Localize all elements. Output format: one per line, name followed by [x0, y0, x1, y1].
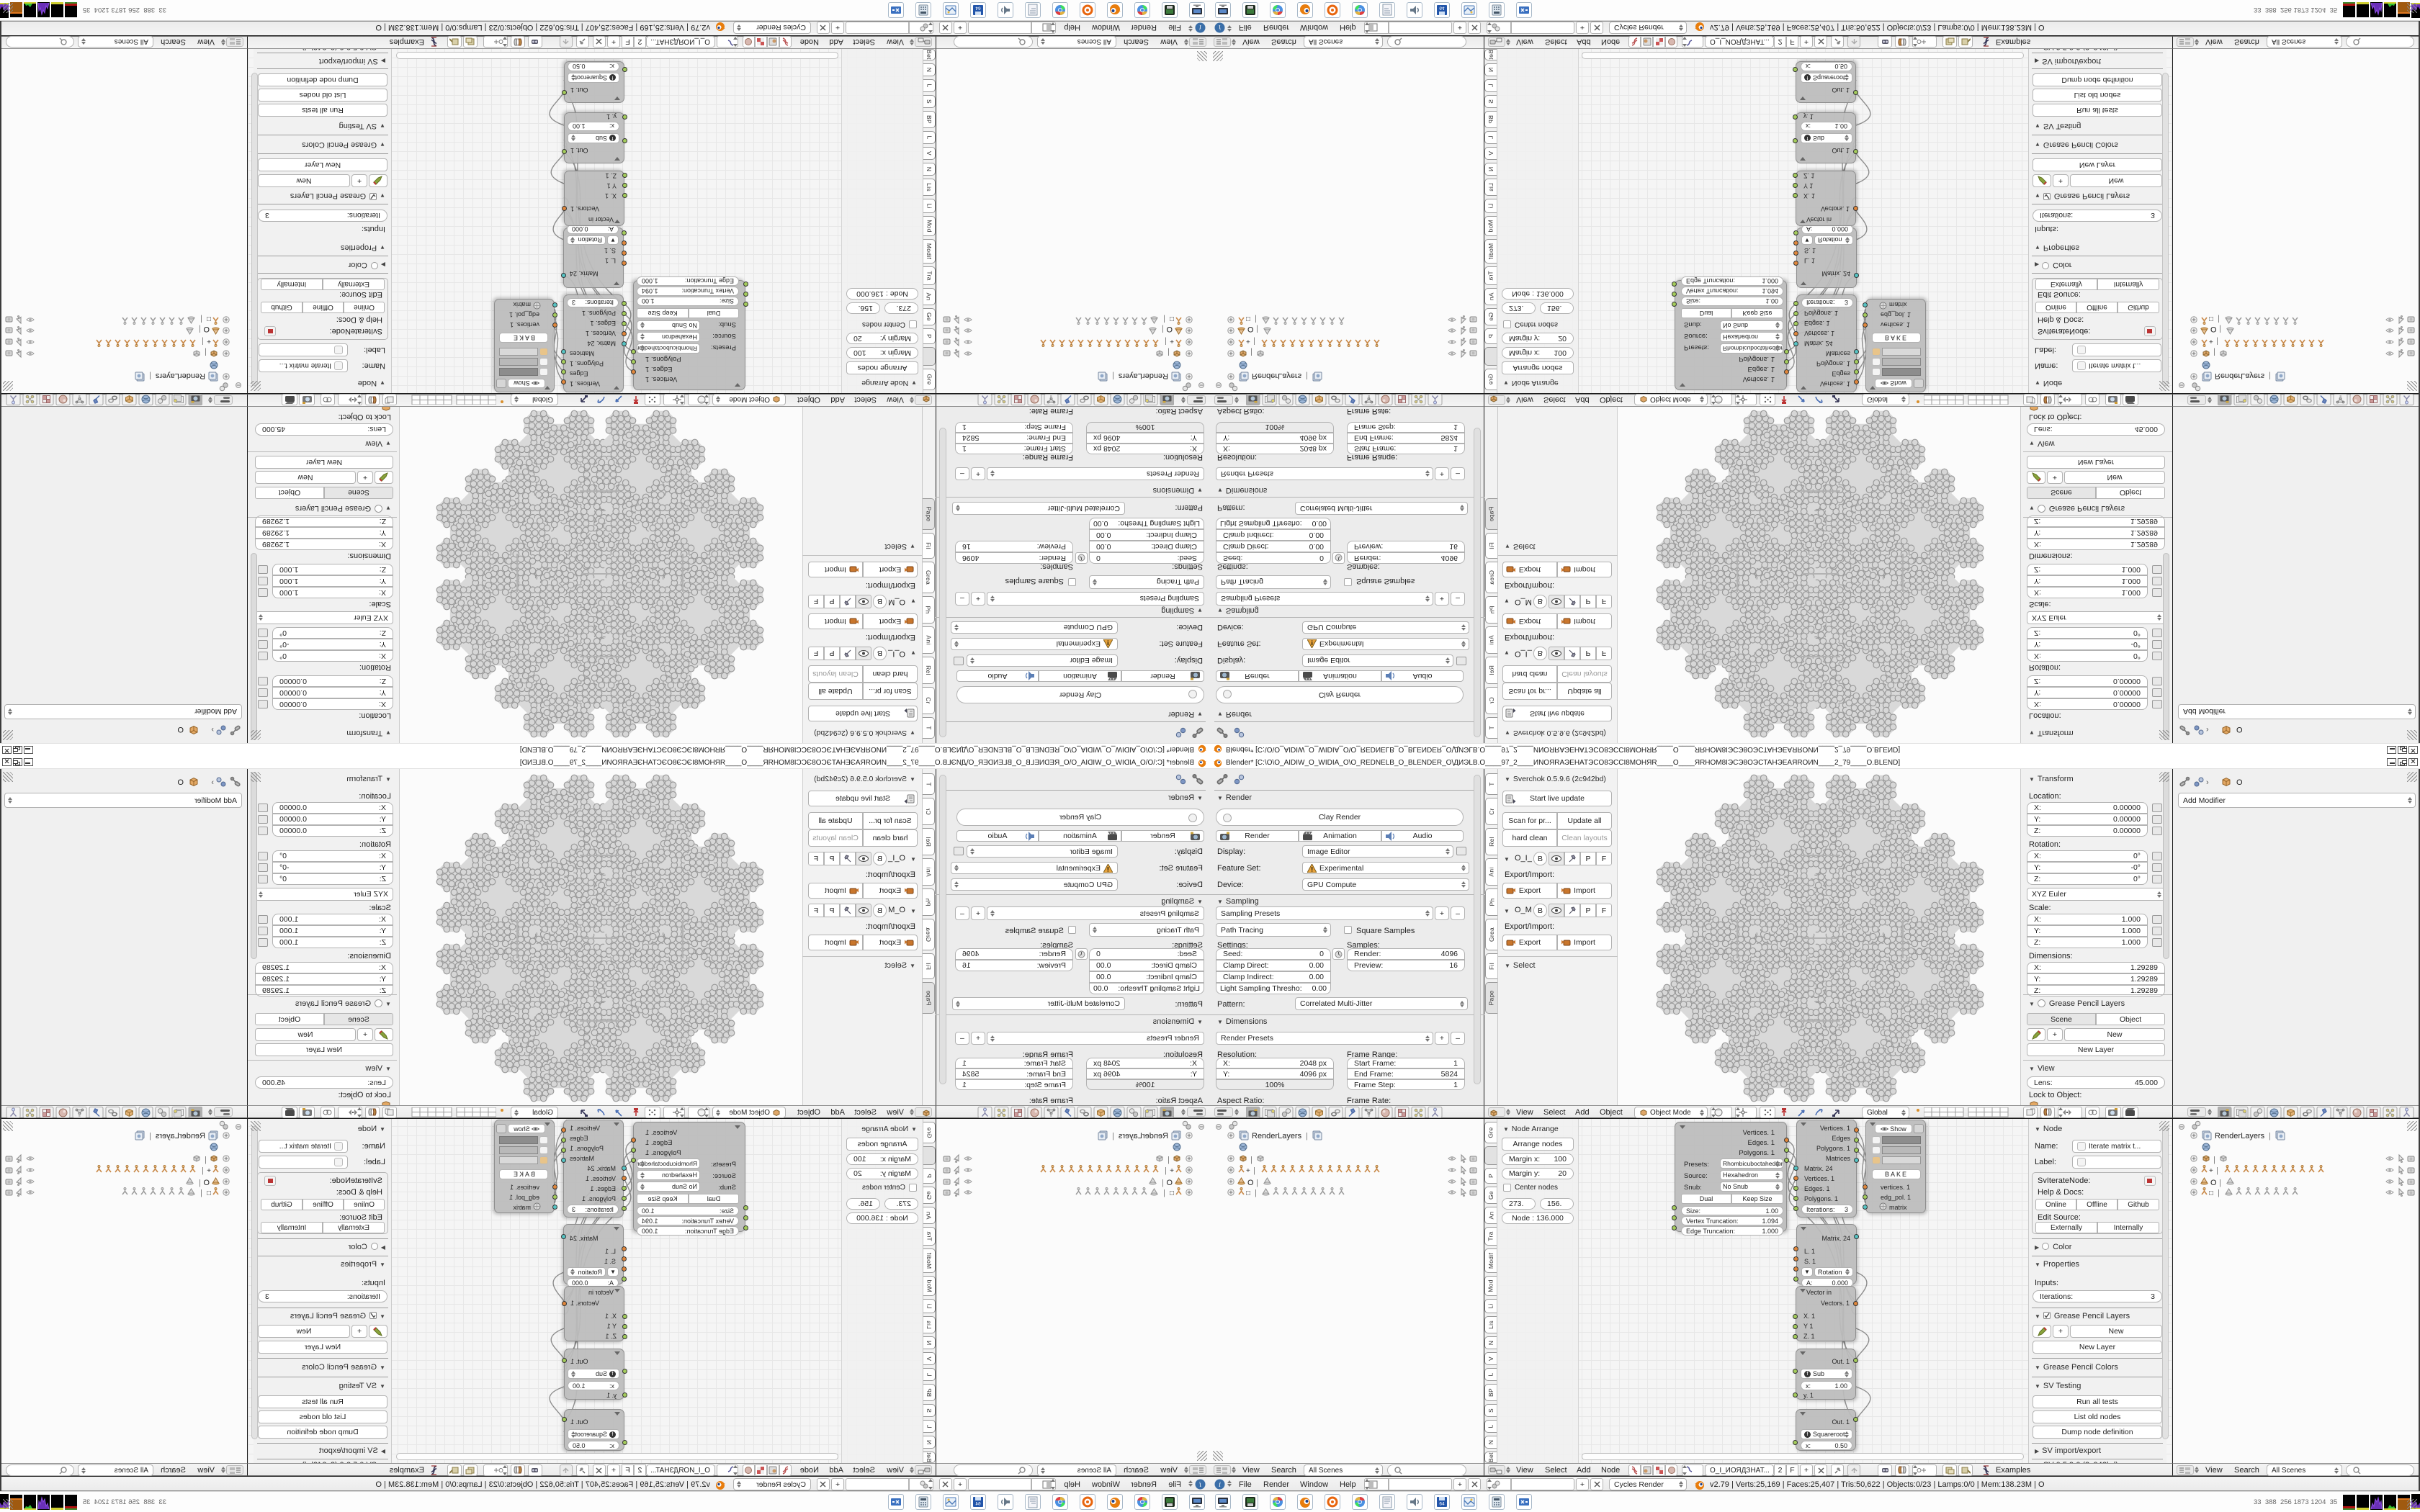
svg-text:|: |: [2213, 348, 2215, 356]
svg-text:RenderLayers: RenderLayers: [2215, 372, 2265, 380]
svg-text:RenderLayers: RenderLayers: [1252, 1132, 1302, 1140]
svg-text:|: |: [1168, 348, 1170, 356]
svg-text:|: |: [1306, 1132, 1308, 1140]
svg-text:O: O: [203, 1179, 210, 1187]
svg-text:|: |: [149, 1132, 151, 1140]
svg-text:O: O: [1166, 1179, 1173, 1187]
svg-text:|: |: [2216, 1166, 2218, 1175]
svg-text:□: □: [207, 1189, 211, 1197]
svg-text:|: |: [1162, 325, 1164, 333]
svg-text:RenderLayers: RenderLayers: [155, 372, 205, 380]
svg-text:|: |: [1163, 315, 1165, 323]
svg-text:+: +: [2209, 337, 2213, 345]
svg-text:O: O: [2210, 1179, 2217, 1187]
svg-text:i: i: [1199, 1481, 1201, 1489]
svg-text:|: |: [2219, 325, 2221, 333]
svg-text:|: |: [205, 1156, 207, 1164]
svg-text:|: |: [1250, 348, 1252, 356]
svg-text:|: |: [2213, 1156, 2215, 1164]
svg-text:i: i: [1219, 1481, 1221, 1489]
svg-text:|: |: [1253, 1166, 1255, 1175]
svg-text:|: |: [1165, 1166, 1167, 1175]
svg-text:64: 64: [1439, 1502, 1445, 1507]
svg-text:|: |: [1163, 1189, 1165, 1197]
svg-text:64: 64: [1439, 6, 1445, 11]
svg-text:|: |: [1256, 1179, 1258, 1187]
svg-text:□: □: [1246, 315, 1250, 323]
svg-text:|: |: [2219, 1179, 2221, 1187]
svg-text:i: i: [1219, 23, 1221, 31]
svg-text:|: |: [199, 1179, 201, 1187]
svg-text:|: |: [1256, 325, 1258, 333]
svg-text:|: |: [205, 348, 207, 356]
svg-text:|: |: [1255, 1189, 1257, 1197]
svg-text:|: |: [1162, 1179, 1164, 1187]
svg-text:+: +: [207, 337, 211, 345]
svg-text:RenderLayers: RenderLayers: [155, 1132, 205, 1140]
svg-text:|: |: [2216, 337, 2218, 346]
svg-text:|: |: [1168, 1156, 1170, 1164]
svg-text:i: i: [1199, 23, 1201, 31]
svg-text:+: +: [1246, 337, 1250, 345]
svg-text:|: |: [1253, 337, 1255, 346]
svg-text:|: |: [1250, 1156, 1252, 1164]
svg-text:RenderLayers: RenderLayers: [1252, 372, 1302, 380]
svg-text:O: O: [1247, 1179, 1254, 1187]
svg-text:|: |: [2269, 372, 2271, 380]
svg-text:|: |: [1165, 337, 1167, 346]
svg-text:64: 64: [975, 1502, 981, 1507]
svg-text:|: |: [149, 372, 151, 380]
svg-text:O: O: [2210, 325, 2217, 333]
svg-text:+: +: [207, 1167, 211, 1175]
svg-text:+: +: [2209, 1167, 2213, 1175]
svg-text:|: |: [1112, 372, 1114, 380]
svg-text:|: |: [202, 1166, 204, 1175]
svg-text:O: O: [203, 325, 210, 333]
svg-text:□: □: [2209, 1189, 2213, 1197]
svg-text:|: |: [1112, 1132, 1114, 1140]
svg-text:□: □: [1170, 1189, 1174, 1197]
svg-text:|: |: [1255, 315, 1257, 323]
svg-text:|: |: [200, 315, 202, 323]
svg-text:+: +: [1246, 1167, 1250, 1175]
svg-text:□: □: [207, 315, 211, 323]
svg-text:RenderLayers: RenderLayers: [1118, 1132, 1168, 1140]
svg-text:|: |: [2218, 315, 2220, 323]
svg-text:64: 64: [975, 6, 981, 11]
svg-text:RenderLayers: RenderLayers: [1118, 372, 1168, 380]
svg-text:RenderLayers: RenderLayers: [2215, 1132, 2265, 1140]
svg-text:|: |: [2269, 1132, 2271, 1140]
svg-text:|: |: [200, 1189, 202, 1197]
svg-text:□: □: [1246, 1189, 1250, 1197]
svg-text:O: O: [1247, 325, 1254, 333]
svg-text:|: |: [202, 337, 204, 346]
svg-text:□: □: [1170, 315, 1174, 323]
svg-text:|: |: [199, 325, 201, 333]
svg-text:+: +: [1170, 1167, 1174, 1175]
svg-text:|: |: [2218, 1189, 2220, 1197]
svg-text:□: □: [2209, 315, 2213, 323]
svg-text:+: +: [1170, 337, 1174, 345]
svg-text:O: O: [1166, 325, 1173, 333]
svg-text:|: |: [1306, 372, 1308, 380]
